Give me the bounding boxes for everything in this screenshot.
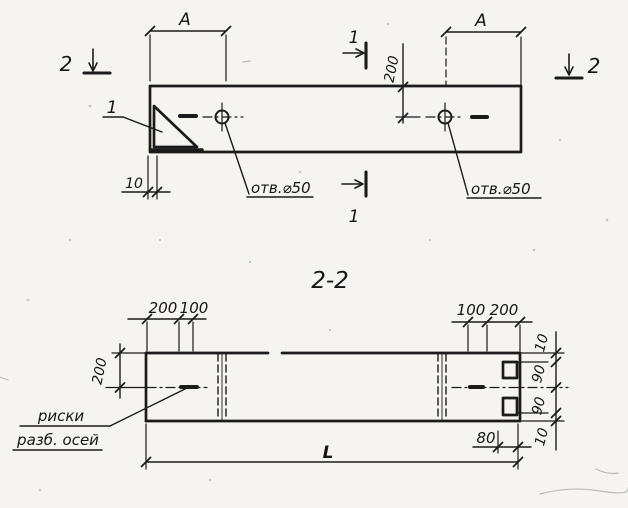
scanned-drawing-sheet: 1 отв.⌀50 отв.⌀50 A	[0, 0, 628, 508]
speck	[69, 239, 71, 241]
dim-200-top-right-label: 200	[490, 301, 519, 319]
axis-marks-note: риски разб. осей	[13, 388, 187, 450]
hole-right-leader	[448, 123, 468, 195]
speck	[329, 329, 331, 331]
section-1-label: 1	[349, 207, 360, 227]
dim-10-bottom-label: 10	[532, 426, 552, 447]
dim-200-plan-label: 200	[381, 54, 402, 84]
dim-90-top-label: 90	[529, 363, 549, 384]
speck	[27, 299, 30, 302]
section-view: 2-2 200	[13, 268, 568, 469]
dim-a-left-label: A	[178, 10, 191, 30]
section-1-label: 1	[349, 28, 360, 48]
dim-10-top-label: 10	[532, 332, 552, 353]
dim-80: 80	[473, 429, 531, 453]
plan-view: 1 отв.⌀50 отв.⌀50 A	[60, 10, 601, 227]
dim-10-plan-label: 10	[125, 176, 143, 192]
dim-100-top-right-label: 100	[457, 301, 486, 319]
section-marker-2-right: 2	[556, 54, 600, 78]
dim-200-top-left-label: 200	[149, 299, 178, 317]
dim-200-section-left: 200	[89, 344, 146, 398]
corner-triangle-detail	[154, 106, 197, 147]
dim-a-right-label: A	[474, 11, 487, 31]
speck	[249, 261, 251, 263]
dims-right-stack: 10 90 90 10	[518, 332, 564, 450]
detail-callout-label: 1	[107, 98, 118, 118]
beam-drawing: 1 отв.⌀50 отв.⌀50 A	[0, 0, 628, 508]
speck	[533, 249, 536, 252]
speck	[159, 239, 161, 241]
speck	[299, 171, 301, 173]
scan-artifacts	[0, 23, 628, 494]
callout-leader-line	[123, 117, 162, 132]
dim-200-plan: 200	[381, 44, 420, 123]
section-title: 2-2	[311, 268, 349, 294]
cut-lines-left	[218, 354, 226, 420]
end-notch-top	[503, 362, 517, 378]
dim-10-plan: 10	[122, 156, 170, 199]
beam-outline-plan	[150, 86, 521, 152]
section-2-label: 2	[588, 54, 601, 78]
dim-length-L: L	[142, 424, 523, 469]
hole-left-label: отв.⌀50	[251, 179, 311, 197]
edge-mark	[0, 377, 8, 380]
dim-200-left-label: 200	[89, 356, 110, 386]
dim-100-top-left-label: 100	[180, 299, 209, 317]
stray-dash	[243, 61, 250, 62]
pencil-smudge	[540, 488, 628, 494]
note-line2: разб. осей	[16, 431, 99, 449]
dim-a-right: A	[442, 11, 526, 85]
end-notch-bottom	[503, 398, 517, 415]
hole-right-label: отв.⌀50	[471, 180, 531, 198]
speck	[89, 105, 92, 108]
section-marker-2-left: 2	[60, 49, 110, 76]
dim-80-label: 80	[476, 429, 495, 447]
speck	[387, 23, 389, 25]
speck	[606, 219, 609, 222]
section-marker-1-top: 1	[343, 28, 366, 68]
speck	[209, 479, 211, 481]
dim-a-left: A	[146, 10, 231, 81]
section-marker-1-bottom: 1	[342, 172, 366, 227]
dim-L-label: L	[323, 443, 334, 463]
section-2-label: 2	[60, 52, 73, 76]
speck	[429, 239, 431, 241]
cut-lines-right	[438, 354, 446, 420]
hole-left-leader	[225, 123, 249, 194]
speck	[559, 139, 561, 141]
dims-top-left: 200 100	[128, 299, 208, 351]
pencil-smudge	[596, 469, 618, 474]
dims-top-right: 100 200	[452, 301, 532, 351]
speck	[39, 489, 42, 492]
note-line1: риски	[37, 407, 85, 425]
